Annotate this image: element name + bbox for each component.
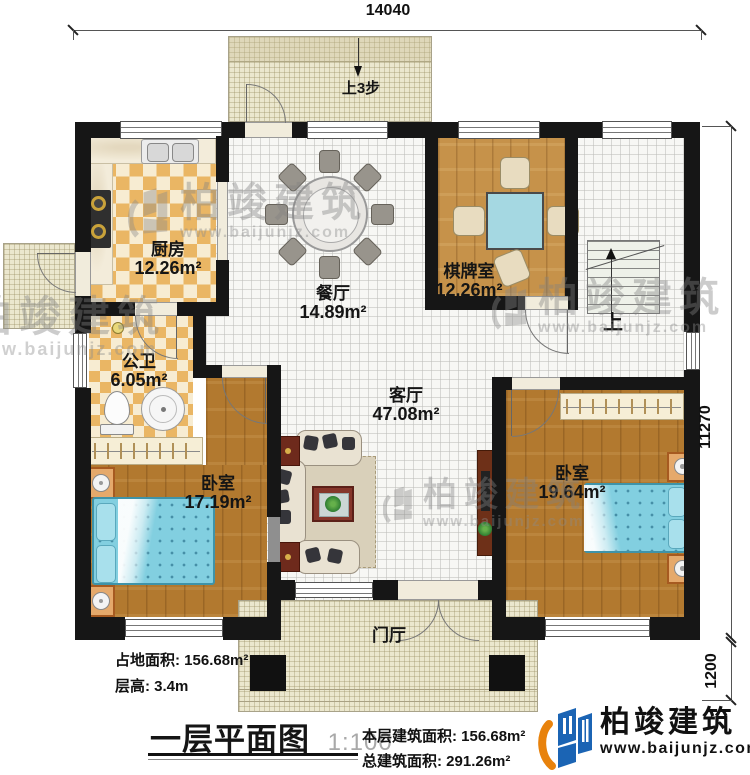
room-area: 47.08m² [346,405,466,424]
porch-column-right [489,655,525,691]
dimension-bottom-right-value: 1200 [703,653,720,689]
stair-break-line [586,245,665,270]
porch-column-left [250,655,286,691]
total-area-line: 总建筑面积: 291.26m² [362,749,510,774]
stairs-up-text: 上 [603,312,623,334]
wall [568,296,578,310]
dining-chair [371,204,394,225]
dimension-ext [701,30,702,40]
wall [75,302,135,316]
dimension-line-right [731,126,732,638]
wardrobe-bedroom-left [89,437,203,465]
lamp-icon [92,592,110,610]
wall [492,377,506,640]
brand-logo-icon [536,706,594,770]
floor-area-line: 本层建筑面积: 156.68m² [362,724,525,749]
wall [478,580,492,600]
room-name: 公卫 [122,352,156,371]
burner [91,196,106,211]
window [458,121,540,139]
window [125,619,223,637]
floor-height-line: 层高: 3.4m [115,674,188,699]
room-label-living: 客厅 47.08m² [346,386,466,424]
dining-chair [319,256,340,279]
wardrobe-hangers [94,443,197,459]
wall [650,617,700,640]
dimension-line-top [73,30,701,31]
entry-steps-arrow-icon [354,66,362,77]
room-label-dining: 餐厅 14.89m² [273,284,393,322]
entry-steps-text: 上3步 [342,80,380,97]
room-label-chess: 棋牌室 12.26m² [409,262,529,300]
sofa-pillow [342,437,355,450]
site-area-label: 占地面积: [115,652,180,669]
window [295,582,373,598]
window [602,121,672,139]
foyer-text: 门厅 [372,626,406,645]
dimension-line-bottom-right [731,642,732,700]
wall [565,136,578,310]
room-name: 棋牌室 [444,262,495,281]
bath-door-opening [135,302,177,316]
room-name: 餐厅 [316,284,350,303]
wall [281,580,295,600]
room-area: 17.19m² [158,493,278,512]
wardrobe-bedroom-right [560,393,684,420]
bed-pillow [96,545,116,583]
room-area: 14.89m² [273,303,393,322]
chess-table [486,192,544,250]
dining-table-inner [303,187,359,243]
room-name: 客厅 [389,386,423,405]
chess-door-opening [525,296,568,310]
basin-icon [141,387,185,431]
tv-console [477,450,493,556]
label-stairs-up: 上 [600,314,626,333]
door-leaf [567,310,568,353]
wall [75,122,91,252]
room-name: 厨房 [151,240,185,259]
dining-chair [319,150,340,173]
dimension-ext [73,30,74,40]
tv-icon [481,471,490,511]
plant-icon [325,496,341,512]
brand-name: 柏竣建筑 [600,706,750,740]
room-name: 卧室 [201,474,235,493]
stair-direction-line [611,256,612,318]
plant-icon [478,522,492,536]
total-area-value: 291.26m² [446,753,510,770]
sofa-pillow [327,548,344,565]
plan-title-text: 一层平面图 [150,722,310,757]
bedroom-right-door-opening [512,377,560,390]
door-leaf [511,390,512,436]
total-area-label: 总建筑面积: [362,753,442,770]
door-leaf [37,253,75,254]
wall [267,562,281,640]
dimension-bottom-right: 1200 [703,641,721,701]
room-area: 6.05m² [79,371,199,390]
wall [177,302,229,316]
floor-height-label: 层高: [115,678,150,695]
wall [75,617,125,640]
basin-drain [161,407,166,412]
toilet-icon [104,391,130,425]
wall [560,377,684,390]
room-area: 12.26m² [409,281,529,300]
wall [292,122,307,138]
room-area: 12.26m² [108,259,228,278]
kitchen-sink-icon [141,139,199,164]
room-label-bedroom-left: 卧室 17.19m² [158,474,278,512]
wall [388,122,458,138]
floor-area-label: 本层建筑面积: [362,728,457,745]
title-underline-thin [148,759,358,760]
dimension-ext [702,126,732,127]
brand-logo: 柏竣建筑 www.baijunjz.com [536,706,750,770]
entry-steps-arrow-line [358,38,359,68]
door-leaf [265,378,266,423]
room-label-bedroom-right: 卧室 19.64m² [512,464,632,502]
wardrobe-hangers [566,399,678,414]
dining-chair [265,204,288,225]
dimension-top-value: 14040 [366,2,411,19]
bedroom-left-door-opening [222,365,267,378]
door-leaf [246,84,247,122]
staircase [587,240,660,314]
chess-chair [453,206,485,236]
room-label-bath: 公卫 6.05m² [79,352,199,390]
dining-table [292,176,368,252]
door-opening-porch [245,122,292,138]
wall [684,122,700,332]
window [120,121,222,139]
room-area: 19.64m² [512,483,632,502]
floor-height-value: 3.4m [154,678,188,695]
label-entry-steps: 上3步 [330,79,392,98]
dimension-top: 14040 [352,2,424,20]
title-underline [148,753,358,756]
sink-bowl [172,143,194,162]
room-name: 卧室 [555,464,589,483]
wall [216,136,229,182]
porch-top-step-band [229,37,431,62]
bath-lamp-icon [112,322,124,334]
site-area-line: 占地面积: 156.68m² [115,648,248,673]
floor-plan-page: 厨房 12.26m² 餐厅 14.89m² 棋牌室 12.26m² 公卫 6.0… [0,0,750,775]
door-opening-side-porch [75,252,91,296]
window [686,332,700,370]
floor-area-value: 156.68m² [461,728,525,745]
entry-door-opening [398,580,478,600]
site-area-value: 156.68m² [184,652,248,669]
toilet-tank [100,424,134,435]
dimension-right-value: 11270 [697,405,714,449]
wall [373,580,398,600]
chess-chair [500,157,530,189]
window [545,619,650,637]
window [307,121,388,139]
stair-arrow-up-icon [606,248,616,259]
label-foyer: 门厅 [361,626,417,645]
dimension-right: 11270 [697,397,715,457]
room-label-kitchen: 厨房 12.26m² [108,240,228,278]
bed-pillow [96,503,116,541]
burner [91,224,106,239]
lamp-icon [92,474,110,492]
sofa-pillow [322,433,339,450]
porch-slab-line [239,701,537,702]
brand-website: www.baijunjz.com [600,740,750,758]
sink-bowl [147,143,169,162]
door-panel [268,517,280,562]
sofa-pillow [303,435,319,451]
wall [75,388,91,640]
